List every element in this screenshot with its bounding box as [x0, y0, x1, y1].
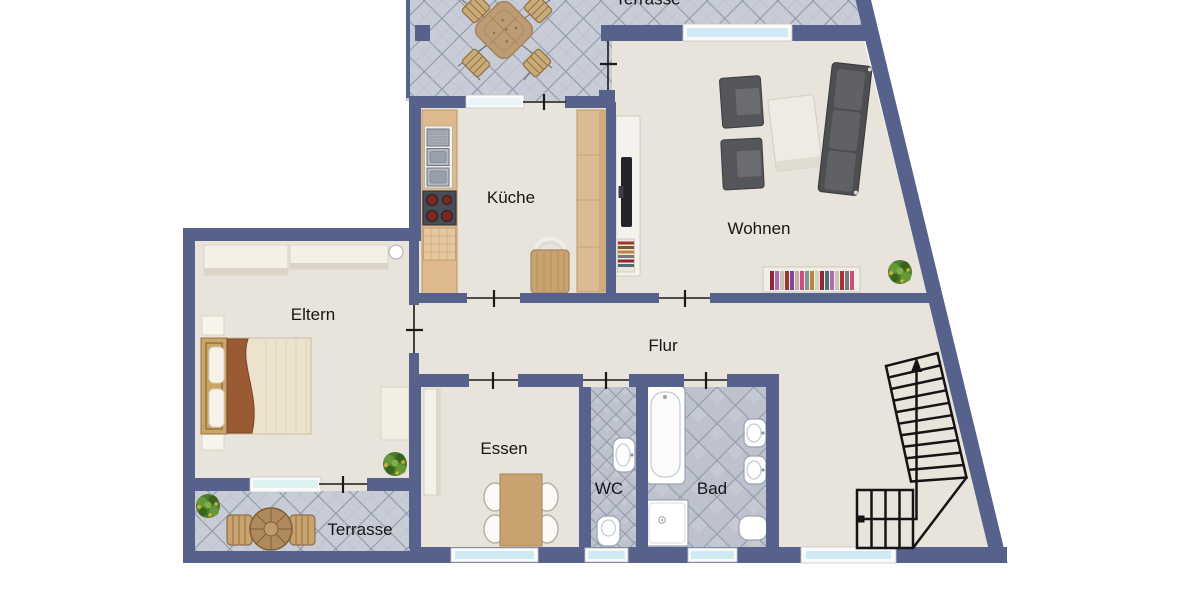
svg-text:Flur: Flur [648, 336, 678, 355]
svg-text:WC: WC [595, 479, 623, 498]
svg-text:Terrasse: Terrasse [615, 0, 680, 9]
svg-text:Terrasse: Terrasse [327, 520, 392, 539]
svg-text:Essen: Essen [480, 439, 527, 458]
svg-text:Eltern: Eltern [291, 305, 335, 324]
svg-text:Bad: Bad [697, 479, 727, 498]
svg-text:Küche: Küche [487, 188, 535, 207]
svg-text:Wohnen: Wohnen [727, 219, 790, 238]
